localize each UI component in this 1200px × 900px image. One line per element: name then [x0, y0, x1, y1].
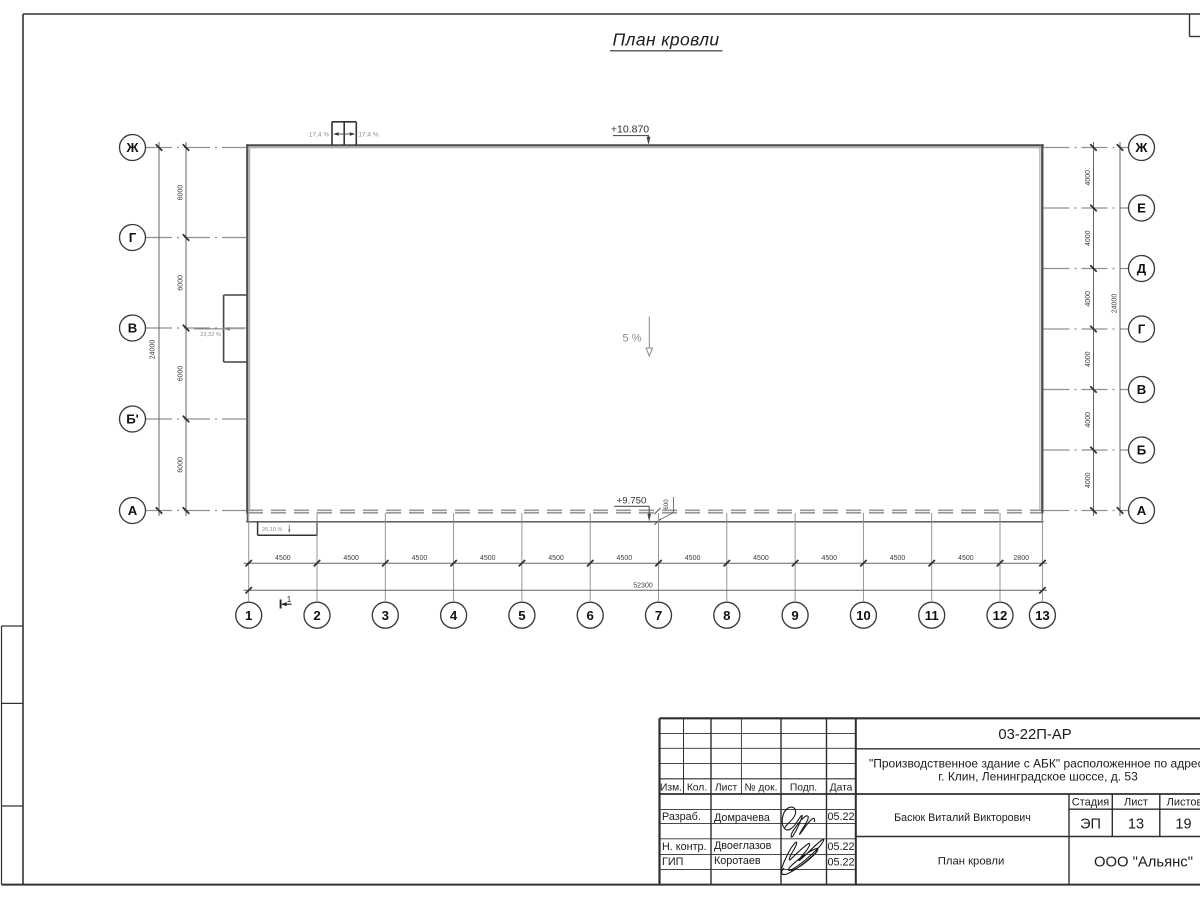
svg-text:03-22П-АР: 03-22П-АР — [998, 727, 1071, 743]
svg-text:Коротаев: Коротаев — [714, 855, 761, 867]
svg-text:4000: 4000 — [1085, 412, 1092, 428]
svg-text:В: В — [1137, 382, 1147, 397]
svg-text:А: А — [128, 503, 138, 518]
svg-text:1: 1 — [287, 595, 292, 604]
svg-text:4500: 4500 — [617, 555, 633, 562]
svg-text:Ж: Ж — [1135, 140, 1148, 155]
svg-text:Е: Е — [1137, 201, 1146, 216]
svg-text:"Производственное здание с АБК: "Производственное здание с АБК" располож… — [869, 757, 1200, 771]
svg-text:Листов: Листов — [1167, 796, 1200, 808]
svg-text:05.22: 05.22 — [827, 841, 854, 853]
svg-text:2800: 2800 — [1013, 555, 1029, 562]
svg-text:+9.750: +9.750 — [617, 496, 647, 507]
svg-text:17,4 %: 17,4 % — [309, 131, 329, 138]
svg-text:Кол.: Кол. — [687, 782, 707, 793]
svg-text:05.22: 05.22 — [827, 811, 854, 823]
svg-text:Д: Д — [1137, 261, 1147, 276]
svg-text:4500: 4500 — [753, 555, 769, 562]
svg-text:4500: 4500 — [548, 555, 564, 562]
svg-text:23,32 %: 23,32 % — [200, 332, 221, 338]
svg-text:4500: 4500 — [275, 555, 291, 562]
svg-text:4: 4 — [450, 608, 458, 623]
svg-text:Домрачева: Домрачева — [714, 812, 770, 824]
svg-text:4500: 4500 — [343, 555, 359, 562]
svg-text:Ж: Ж — [126, 140, 139, 155]
svg-text:А: А — [1137, 503, 1147, 518]
svg-text:4500: 4500 — [685, 555, 701, 562]
svg-text:Дата: Дата — [830, 782, 853, 793]
svg-text:6: 6 — [587, 608, 594, 623]
svg-text:6000: 6000 — [178, 366, 185, 382]
svg-text:6000: 6000 — [178, 185, 185, 201]
svg-text:ЭП: ЭП — [1080, 817, 1101, 833]
svg-text:52300: 52300 — [633, 582, 653, 589]
svg-text:ООО "Альянс": ООО "Альянс" — [1094, 855, 1193, 871]
svg-text:24000: 24000 — [150, 340, 157, 360]
svg-text:План кровли: План кровли — [938, 856, 1005, 868]
svg-text:Н. контр.: Н. контр. — [662, 841, 707, 853]
svg-text:1: 1 — [245, 608, 252, 623]
svg-text:Лист: Лист — [715, 782, 738, 793]
svg-text:2: 2 — [313, 608, 320, 623]
svg-text:В: В — [128, 321, 138, 336]
svg-text:Б: Б — [1137, 443, 1147, 458]
svg-text:Разраб.: Разраб. — [662, 811, 701, 823]
svg-text:ГИП: ГИП — [662, 856, 683, 868]
svg-text:6000: 6000 — [178, 457, 185, 473]
svg-text:+10.870: +10.870 — [611, 124, 649, 136]
svg-text:№ док.: № док. — [744, 782, 777, 793]
svg-text:11: 11 — [925, 608, 939, 623]
svg-text:3: 3 — [382, 608, 389, 623]
svg-text:Двоеглазов: Двоеглазов — [714, 840, 772, 852]
svg-text:4000: 4000 — [1085, 170, 1092, 186]
svg-text:4500: 4500 — [821, 555, 837, 562]
svg-text:4500: 4500 — [958, 555, 974, 562]
svg-text:9: 9 — [791, 608, 798, 623]
svg-text:05.22: 05.22 — [827, 857, 854, 869]
svg-text:8: 8 — [723, 608, 730, 623]
svg-text:26,10 %: 26,10 % — [262, 527, 283, 533]
svg-text:Б': Б' — [126, 412, 139, 427]
svg-text:г. Клин, Ленинградское шоссе,: г. Клин, Ленинградское шоссе, д. 53 — [938, 770, 1138, 784]
svg-text:Г: Г — [129, 230, 137, 245]
svg-text:Подп.: Подп. — [790, 782, 817, 793]
svg-text:4000: 4000 — [1085, 472, 1092, 488]
svg-text:4500: 4500 — [890, 555, 906, 562]
svg-text:Лист: Лист — [1124, 796, 1148, 808]
svg-text:План кровли: План кровли — [612, 30, 719, 50]
svg-text:4500: 4500 — [480, 555, 496, 562]
svg-text:5 %: 5 % — [623, 333, 642, 345]
svg-text:17,4 %: 17,4 % — [358, 131, 378, 138]
svg-text:Г: Г — [1138, 322, 1146, 337]
svg-text:5: 5 — [518, 608, 525, 623]
svg-text:4000: 4000 — [1085, 351, 1092, 367]
svg-text:600: 600 — [663, 499, 670, 510]
svg-text:19: 19 — [1175, 817, 1191, 833]
svg-text:7: 7 — [655, 608, 662, 623]
svg-text:10: 10 — [856, 608, 871, 623]
svg-text:Изм.: Изм. — [660, 782, 682, 793]
svg-text:13: 13 — [1128, 817, 1144, 833]
svg-text:4000: 4000 — [1085, 291, 1092, 307]
svg-text:13: 13 — [1035, 608, 1050, 623]
svg-text:4500: 4500 — [412, 555, 428, 562]
svg-text:6000: 6000 — [178, 275, 185, 291]
svg-text:4000: 4000 — [1085, 230, 1092, 246]
svg-text:Басюк Виталий Викторович: Басюк Виталий Викторович — [894, 812, 1031, 824]
svg-text:Стадия: Стадия — [1072, 796, 1110, 808]
svg-text:24000: 24000 — [1112, 294, 1119, 314]
svg-text:12: 12 — [993, 608, 1008, 623]
